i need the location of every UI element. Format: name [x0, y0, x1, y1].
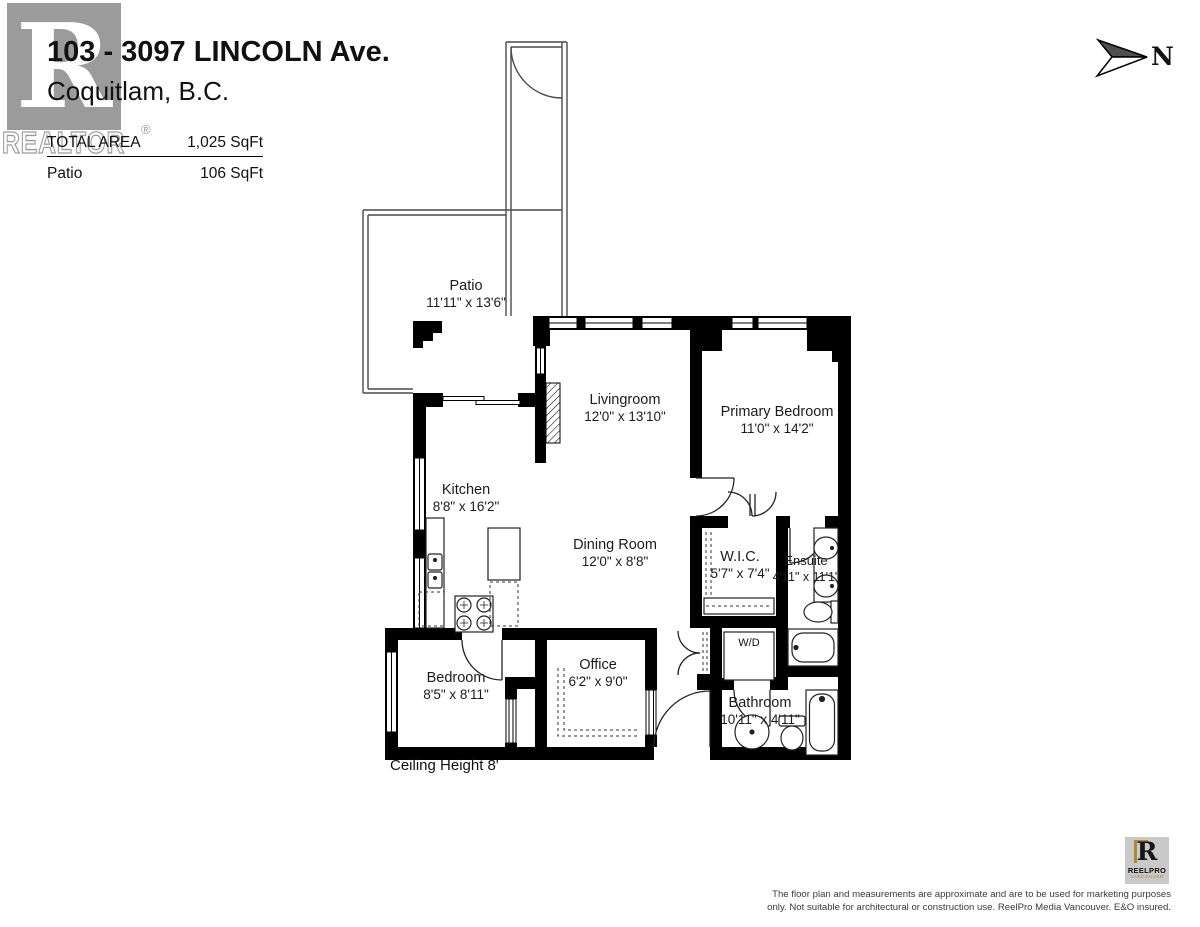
- room-label-ensuite: Ensuite 4'11" x 11'1": [773, 552, 840, 585]
- address-line2: Coquitlam, B.C.: [47, 76, 229, 107]
- office-pocket-door: [646, 690, 656, 735]
- reelpro-logo: R REELPRO VANCOUVER: [1125, 837, 1169, 884]
- kitchen-peninsula: [488, 528, 520, 580]
- reelpro-logo-letter: R: [1125, 837, 1169, 867]
- bedroom-closet-sliding-door: [506, 699, 516, 743]
- disclaimer-line2: only. Not suitable for architectural or …: [531, 902, 1171, 915]
- patio-sliding-door: [443, 397, 484, 401]
- ceiling-height-note: Ceiling Height 8': [390, 757, 499, 774]
- room-label-office: Office 6'2" x 9'0": [568, 657, 627, 690]
- floor-plan-page: { "header": { "address_line1": "103 - 30…: [0, 0, 1200, 927]
- primary-bedroom-door-arc: [696, 478, 734, 516]
- address-line1: 103 - 3097 LINCOLN Ave.: [47, 36, 390, 69]
- total-area-row: TOTAL AREA 1,025 SqFt: [47, 134, 263, 157]
- hatched-wall-feature: [546, 383, 560, 443]
- patio-area-label: Patio: [47, 165, 82, 183]
- entry-door-arc: [654, 691, 710, 747]
- reelpro-logo-title: REELPRO: [1125, 866, 1169, 875]
- room-label-patio: Patio 11'11" x 13'6": [426, 278, 506, 311]
- disclaimer-line1: The floor plan and measurements are appr…: [531, 889, 1171, 902]
- room-label-bathroom: Bathroom 10'11" x 4'11": [720, 695, 800, 728]
- washer-dryer-label: W/D: [738, 637, 759, 649]
- room-label-kitchen: Kitchen 8'8" x 16'2": [433, 482, 500, 515]
- patio-area-value: 106 SqFt: [200, 165, 263, 183]
- kitchen-dashed-counter: [490, 582, 518, 626]
- area-table: TOTAL AREA 1,025 SqFt Patio 106 SqFt: [47, 134, 263, 183]
- corridor-door-arc: [511, 47, 562, 98]
- hall-closet-bifold-arc: [678, 631, 700, 653]
- compass-north-label: N: [1151, 42, 1174, 71]
- room-label-bedroom: Bedroom 8'5" x 8'11": [423, 670, 489, 703]
- north-arrow-icon: [1090, 35, 1160, 85]
- reelpro-logo-subtitle: VANCOUVER: [1125, 875, 1169, 880]
- total-area-value: 1,025 SqFt: [187, 134, 263, 152]
- room-label-primary-bedroom: Primary Bedroom 11'0" x 14'2": [721, 404, 834, 437]
- room-label-wic: W.I.C. 5'7" x 7'4": [710, 549, 769, 582]
- total-area-label: TOTAL AREA: [47, 134, 141, 152]
- wic-double-door-arc: [728, 492, 752, 516]
- patio-area-row: Patio 106 SqFt: [47, 165, 263, 183]
- room-label-livingroom: Livingroom 12'0" x 13'10": [584, 392, 666, 425]
- disclaimer: The floor plan and measurements are appr…: [531, 889, 1171, 914]
- room-label-dining-room: Dining Room 12'0" x 8'8": [573, 537, 657, 570]
